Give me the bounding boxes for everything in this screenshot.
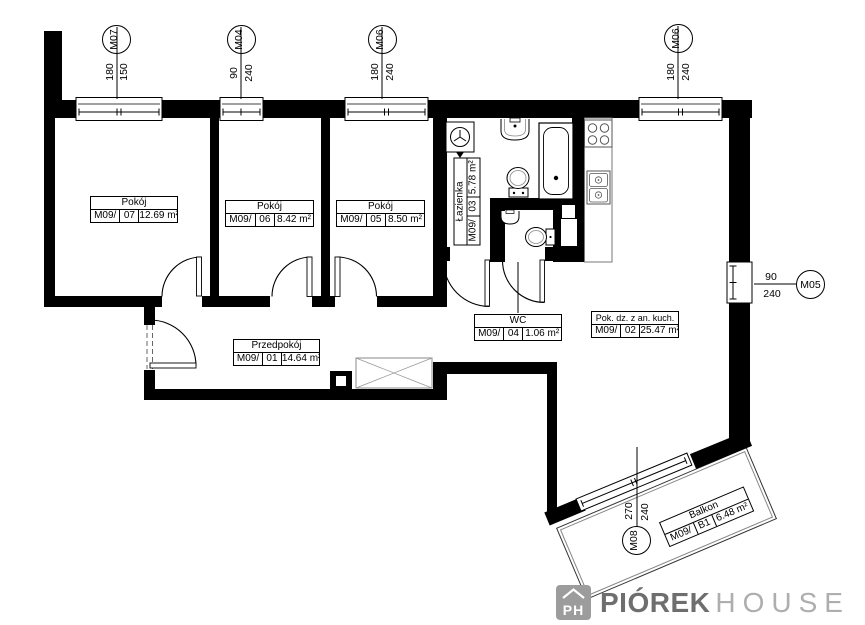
window-marker-m04: M04 <box>227 25 256 54</box>
room-label-pokoj-05: Pokój M09/ 05 8.50 m² <box>336 200 425 227</box>
room-unit: M09/ <box>592 325 621 337</box>
dimension-label: 240 <box>243 55 255 91</box>
room-area: 5.78 m² <box>468 159 480 197</box>
bathroom-sink-icon <box>501 118 529 140</box>
room-label-pokoj-07: Pokój M09/ 07 12.69 m² <box>90 196 178 223</box>
bathroom-toilet-icon <box>507 168 529 198</box>
room-unit: M09/ <box>468 215 480 244</box>
door-room-05 <box>335 257 377 297</box>
window-m07 <box>76 98 162 121</box>
room-label-pokoj-06: Pokój M09/ 06 8.42 m² <box>225 200 314 227</box>
room-name: Pokój <box>226 201 313 214</box>
window-marker-m06-left: M06 <box>368 25 397 54</box>
room-name: Łazienka <box>455 159 468 245</box>
room-name: Przedpokój <box>234 340 319 353</box>
window-marker-m08: M08 <box>622 526 651 555</box>
window-m04 <box>220 98 263 121</box>
dimension-label: 240 <box>384 54 396 90</box>
room-name: Pokój <box>91 197 177 210</box>
room-number: 06 <box>256 214 275 226</box>
stove-icon <box>585 120 613 147</box>
room-number: 02 <box>621 325 640 337</box>
room-name: Pok. dz. z an. kuch. <box>592 312 678 325</box>
dimension-label: 180 <box>369 54 381 90</box>
marker-id: M05 <box>797 271 824 298</box>
kitchen-sink-icon <box>587 171 610 204</box>
door-wc <box>503 260 545 303</box>
room-area: 8.50 m² <box>386 214 424 226</box>
window-marker-m05: M05 <box>796 270 825 299</box>
brand-light: HOUSE <box>715 587 850 619</box>
room-label-lazienka: Łazienka M09/ 03 5.78 m² <box>454 158 481 246</box>
room-area: 25.47 m² <box>640 325 678 337</box>
dimension-label: 180 <box>665 54 677 90</box>
dimension-label: 180 <box>104 54 116 90</box>
door-room-07 <box>162 257 202 297</box>
room-label-living: Pok. dz. z an. kuch. M09/ 02 25.47 m² <box>591 311 679 338</box>
marker-id: M06 <box>662 25 689 52</box>
room-unit: M09/ <box>234 353 263 365</box>
room-unit: M09/ <box>91 210 120 222</box>
dimension-label: 240 <box>639 494 651 530</box>
dimension-label: 240 <box>680 54 692 90</box>
bathtub-icon <box>539 123 573 199</box>
wc-sink-icon <box>501 210 519 224</box>
room-area: 8.42 m² <box>275 214 313 226</box>
window-m06-right <box>639 98 722 121</box>
room-area: 14.64 m² <box>282 353 319 365</box>
dimension-label: 90 <box>228 55 240 91</box>
room-unit: M09/ <box>337 214 367 226</box>
wc-toilet-icon <box>526 228 556 247</box>
dimension-label: 240 <box>754 288 790 300</box>
logo-house-icon: PH <box>556 585 591 620</box>
brand-bold: PIÓREK <box>600 587 710 619</box>
room-name: WC <box>475 315 561 328</box>
room-number: 01 <box>263 353 282 365</box>
marker-id: M08 <box>620 527 647 554</box>
dimension-label: 270 <box>623 493 635 529</box>
room-area: 1.06 m² <box>523 328 561 340</box>
plan-drawing <box>0 0 865 625</box>
window-marker-m07: M07 <box>102 25 131 54</box>
logo-wordmark: PIÓREK HOUSE <box>600 587 850 619</box>
door-room-06 <box>272 257 312 297</box>
window-m05 <box>727 262 752 303</box>
washing-machine-icon <box>446 122 474 158</box>
marker-id: M04 <box>225 26 252 53</box>
room-label-przedpokoj: Przedpokój M09/ 01 14.64 m² <box>233 339 320 366</box>
window-m06-left <box>345 98 428 121</box>
room-number: 04 <box>504 328 523 340</box>
dimension-label: 150 <box>118 54 130 90</box>
room-unit: M09/ <box>226 214 256 226</box>
wardrobe-icon <box>356 358 432 388</box>
floor-plan: Balkon M09/ B1 6.48 m² <box>0 0 865 625</box>
window-marker-m06-right: M06 <box>664 24 693 53</box>
room-number: 05 <box>367 214 386 226</box>
room-name: Pokój <box>337 201 424 214</box>
room-area: 12.69 m² <box>139 210 177 222</box>
marker-id: M07 <box>100 26 127 53</box>
room-label-wc: WC M09/ 04 1.06 m² <box>474 314 562 341</box>
marker-id: M06 <box>366 26 393 53</box>
door-bathroom <box>444 260 490 307</box>
entrance-door <box>147 320 196 369</box>
room-number: 07 <box>120 210 139 222</box>
room-number: 03 <box>468 196 480 215</box>
dimension-label: 90 <box>753 271 789 283</box>
piorek-house-logo: PH PIÓREK HOUSE <box>556 585 850 620</box>
room-unit: M09/ <box>475 328 504 340</box>
logo-initials: PH <box>556 602 591 618</box>
